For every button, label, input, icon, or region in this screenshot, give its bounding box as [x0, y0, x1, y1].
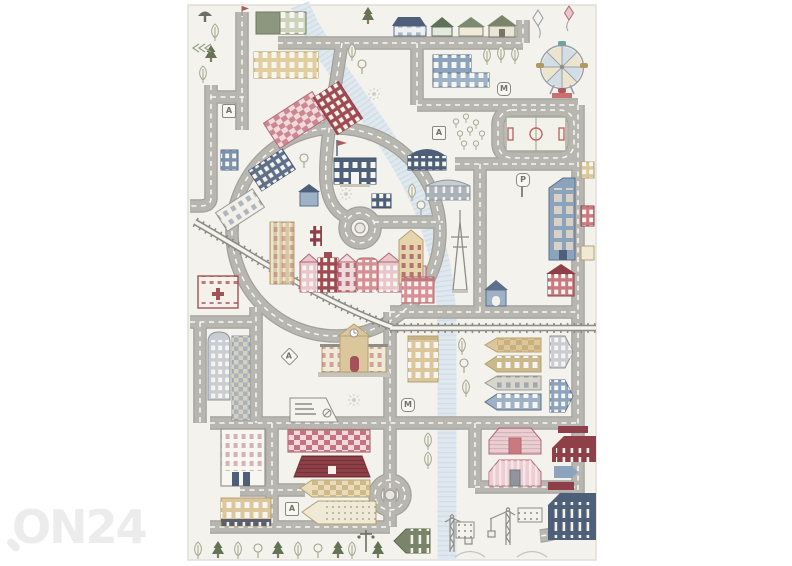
- hospital-building: [198, 276, 238, 308]
- small-house-navy: [372, 194, 391, 208]
- warehouse-tan-arrow: [300, 480, 370, 497]
- tower-maroon-small: [310, 226, 322, 246]
- metro-sign-m: M: [401, 398, 415, 412]
- checkered-tower: [232, 336, 250, 420]
- blue-tower: [549, 178, 575, 260]
- roundabout-center: [355, 223, 365, 233]
- stadium: [506, 117, 566, 151]
- road-sign-label: A: [286, 352, 292, 360]
- road-sign-a: A: [285, 502, 299, 516]
- watermark-logo: ON24: [12, 500, 146, 554]
- house-tan-tall: [399, 230, 423, 284]
- metro-sign-m: M: [497, 82, 511, 96]
- building-tan-long: [221, 498, 271, 526]
- warehouse-cream-arrow: [302, 501, 376, 524]
- warehouse-checkered: [288, 430, 370, 452]
- small-blue-building: [221, 150, 238, 170]
- road-sign-a: A: [432, 126, 446, 140]
- pink-hangar: [489, 460, 541, 486]
- office-block-green: [256, 12, 306, 34]
- building-tan-mid: [408, 336, 438, 382]
- pink-hangar: [489, 428, 541, 454]
- road-sign-a: A: [222, 104, 236, 118]
- parking-sign-p: P: [516, 173, 530, 187]
- office-block-tan: [254, 52, 318, 78]
- hangar-building: [426, 180, 470, 200]
- tower-tan: [270, 222, 294, 284]
- product-photo: A M A P A M A ON24: [0, 0, 792, 566]
- house-pink: [402, 277, 434, 303]
- play-rug-image: [0, 0, 792, 566]
- warehouse-roof: [294, 456, 370, 477]
- apartment-building: [221, 429, 265, 486]
- silo-tower: [208, 332, 230, 400]
